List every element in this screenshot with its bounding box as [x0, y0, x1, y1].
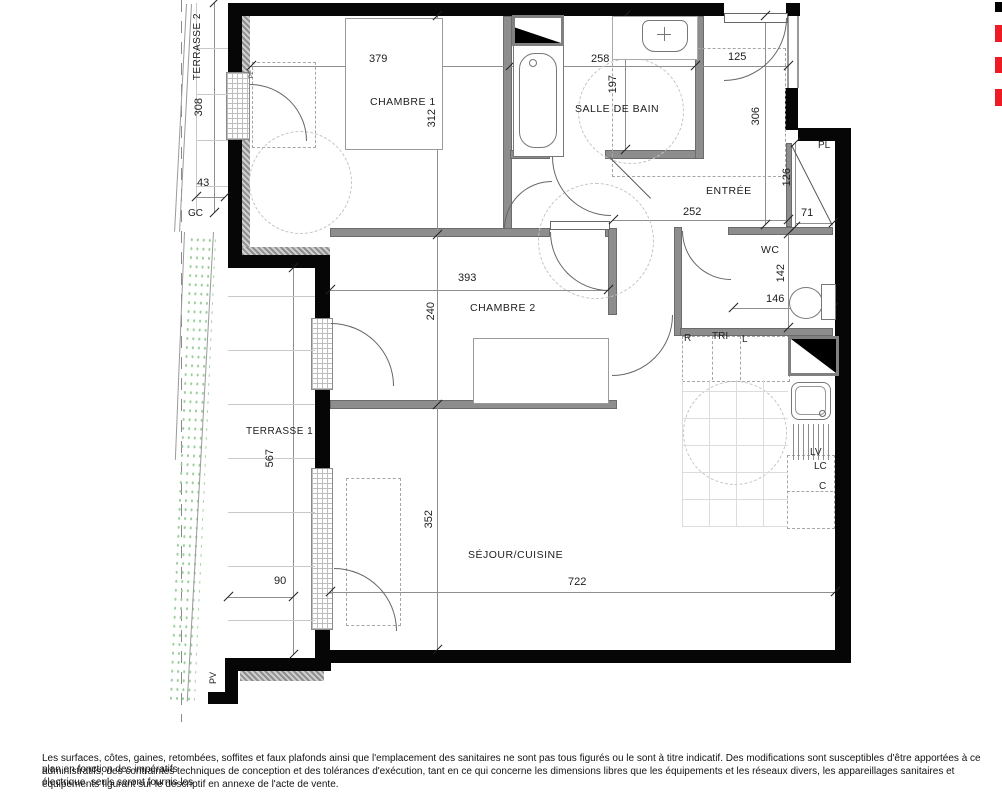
door-arc	[612, 315, 673, 376]
wall-insulation	[242, 138, 250, 248]
turning-circle	[249, 131, 352, 234]
floor-plan-page: { "plan": { "rooms": { "chambre1": {"lab…	[0, 0, 1002, 800]
door-panel	[550, 221, 610, 230]
washbasin	[612, 16, 698, 60]
wall-segment	[225, 658, 238, 704]
room-label-placard: PL	[818, 140, 830, 151]
dashed-divider	[712, 336, 713, 380]
toilet	[789, 284, 835, 320]
wall-segment	[228, 138, 242, 256]
disclaimer-line-3: équipements figurant sur le descriptif e…	[42, 779, 994, 790]
partition-wall	[680, 328, 833, 336]
room-label-sejour-cuisine: SÉJOUR/CUISINE	[468, 549, 563, 561]
furniture-outline	[345, 18, 443, 150]
annotation-refrigerateur: R	[684, 333, 691, 344]
annotation-pf: PF	[248, 70, 255, 78]
partition-wall	[728, 227, 833, 235]
dim-chambre1-width: 379	[369, 53, 387, 65]
door-arc	[331, 323, 394, 386]
legend-mark-red-3	[995, 89, 1002, 106]
kitchen-duct	[788, 336, 839, 376]
dim-chambre2-width: 393	[458, 272, 476, 284]
wall-segment	[228, 3, 724, 16]
dim-entree-door: 125	[728, 51, 746, 63]
wall-segment	[315, 650, 851, 663]
wall-segment	[225, 658, 331, 671]
legend-mark-red-1	[995, 25, 1002, 42]
dashed-divider	[740, 336, 741, 380]
room-label-wc: WC	[761, 244, 780, 256]
wall-segment	[228, 3, 242, 73]
wall-insulation	[242, 16, 250, 72]
dim-wc-width: 146	[766, 293, 784, 305]
dimension-line	[228, 597, 293, 598]
dim-chambre2-depth: 240	[425, 302, 437, 320]
dim-entree-depth: 306	[750, 107, 762, 125]
annotation-lc: LC	[814, 461, 827, 472]
wall-segment	[786, 3, 800, 16]
wall-insulation	[240, 671, 324, 681]
deck-line	[228, 296, 315, 297]
dim-sdb-depth: 197	[607, 75, 619, 93]
window	[226, 72, 250, 140]
floor-plan: CHAMBRE 1 SALLE DE BAIN ENTRÉE PL WC CHA…	[0, 0, 1002, 745]
dimension-line	[795, 223, 833, 224]
dim-entree-width: 252	[683, 206, 701, 218]
annotation-gc: GC	[188, 208, 203, 219]
annotation-lave-linge: L	[742, 334, 748, 345]
dim-placard-width: 71	[801, 207, 813, 219]
legend-mark-red-2	[995, 57, 1002, 73]
annotation-pv: PV	[208, 672, 218, 684]
wall-insulation	[242, 247, 330, 255]
room-label-chambre1: CHAMBRE 1	[370, 96, 436, 108]
annotation-tri: TRI	[712, 331, 728, 342]
room-label-chambre2: CHAMBRE 2	[470, 302, 536, 314]
window	[311, 318, 333, 390]
deck-line	[228, 404, 315, 405]
bathroom-duct	[512, 15, 564, 46]
dim-terrasse1-length: 567	[264, 449, 276, 467]
dimension-line	[330, 592, 835, 593]
kitchen-floor-tiles	[682, 380, 788, 527]
dimension-line	[196, 197, 225, 198]
dashed-outline	[787, 455, 835, 529]
room-label-entree: ENTRÉE	[706, 185, 752, 197]
partition-wall	[674, 227, 682, 336]
annotation-cuisson: C	[819, 481, 826, 492]
deck-line	[228, 620, 315, 621]
annotation-lave-vaisselle: LV	[810, 447, 822, 458]
window	[311, 468, 333, 630]
dim-wc-depth: 142	[775, 264, 787, 282]
dim-sdb-width: 258	[591, 53, 609, 65]
wall-segment	[315, 628, 330, 656]
door-arc	[682, 231, 731, 280]
bathtub	[513, 45, 564, 157]
room-label-terrasse2: TERRASSE 2	[192, 13, 203, 80]
dim-terrasse1-width: 90	[274, 575, 286, 587]
window	[787, 16, 799, 88]
dashed-outline	[682, 336, 790, 382]
dim-terrasse2-width: 43	[197, 177, 209, 189]
dim-terrasse2-length: 308	[193, 98, 205, 116]
room-label-salle-de-bain: SALLE DE BAIN	[575, 103, 659, 115]
dim-sejour-width: 722	[568, 576, 586, 588]
wall-segment	[315, 254, 330, 318]
dimension-line	[214, 3, 215, 213]
deck-line	[228, 566, 315, 567]
wall-segment	[315, 388, 330, 468]
dim-chambre1-depth: 312	[426, 109, 438, 127]
dim-placard-depth: 126	[781, 168, 793, 186]
room-label-terrasse1: TERRASSE 1	[246, 426, 313, 437]
wall-segment	[785, 88, 798, 130]
deck-line	[196, 94, 228, 95]
furniture-outline	[473, 338, 609, 404]
deck-line	[228, 350, 315, 351]
dim-sejour-depth: 352	[423, 510, 435, 528]
deck-line	[196, 140, 228, 141]
legend-mark-black	[995, 2, 1002, 12]
deck-line	[228, 512, 315, 513]
